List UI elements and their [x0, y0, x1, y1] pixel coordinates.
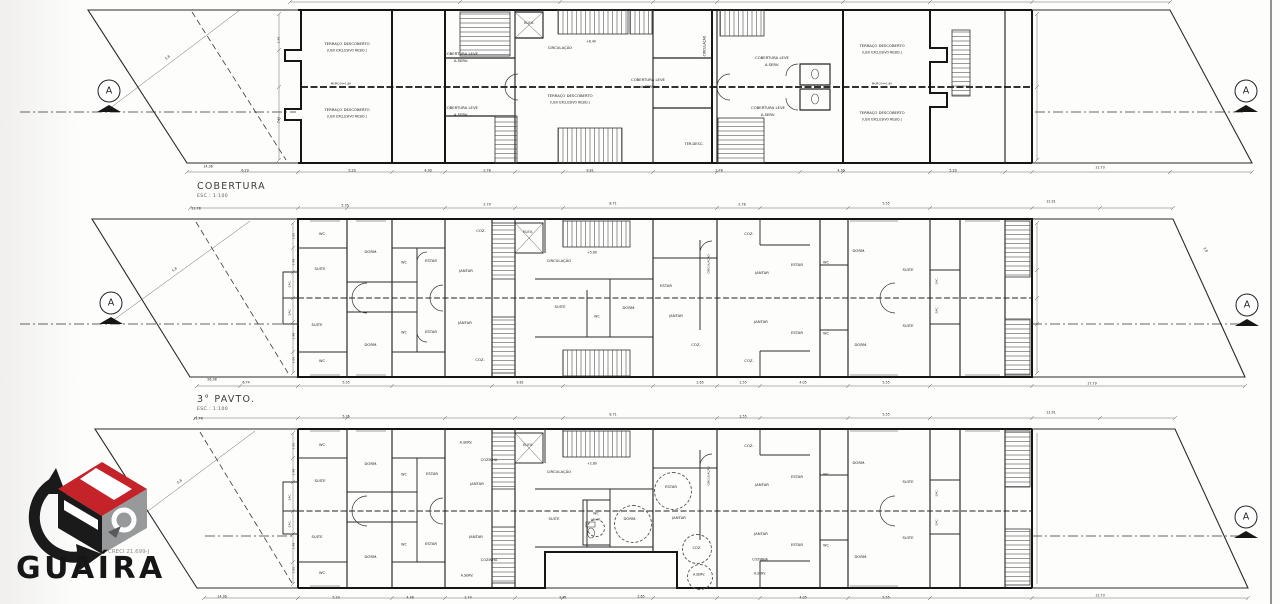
plan-annotation: JANTAR — [755, 271, 769, 275]
plan-annotation: ESTAR — [660, 284, 672, 288]
plan-annotation: WC — [823, 544, 829, 547]
plan-annotation: CIRCULAÇÃO — [547, 470, 572, 474]
plan-annotation: COBERTURA LEVE — [631, 78, 665, 82]
plan-annotation: 1.48 — [293, 543, 296, 550]
section-marker-arrow — [1234, 105, 1258, 112]
plan-annotation: SUITE — [902, 324, 913, 328]
plan-annotation: +5.60 — [587, 251, 597, 254]
plan-annotation: 6.29 — [241, 169, 248, 172]
plan-annotation: COZ. — [744, 359, 753, 363]
plan-annotation: 9.81 — [586, 169, 593, 172]
plan-annotation: TERRAÇO DESCOBERTO — [547, 94, 592, 98]
plan-annotation: COZ. — [744, 444, 753, 448]
plan-annotation: A.SERV. — [641, 85, 655, 89]
plan-annotation: TERRAÇO DESCOBERTO — [324, 108, 369, 112]
plan-annotation: JANTAR — [754, 532, 768, 536]
plan-annotation: 56.38 — [207, 378, 216, 381]
turning-radius-circle — [614, 505, 652, 543]
guaira-logo-graphic: CRECI 21.699-J GUAÍRA — [8, 438, 208, 598]
plan-annotation: WC — [823, 261, 829, 264]
plan-annotation: TER.DESC. — [685, 143, 704, 147]
plan-annotation: 1.48 — [278, 117, 281, 124]
plan-annotation: CIRCULAÇÃO — [708, 254, 711, 273]
plan-annotation: 5.35 — [342, 381, 349, 384]
plan-annotation: 11.73 — [1095, 166, 1104, 169]
plan-annotation: COBERTURA LEVE — [444, 52, 478, 56]
plan-annotation: (USO EXCLUSIVO RESID.) — [327, 115, 367, 118]
section-marker-arrow — [99, 317, 123, 324]
plan-annotation: JANTAR — [469, 535, 483, 539]
plan-annotation: JANTAR — [458, 321, 472, 325]
plan-annotation: 2.79 — [483, 203, 490, 206]
plan-annotation: MURO H=1.80 — [872, 83, 892, 86]
plan-annotation: A.SERV. — [765, 63, 779, 67]
plan-annotation: (USO EXCLUSIVO RESID.) — [327, 49, 367, 52]
plan-annotation: 5.8 — [165, 55, 171, 61]
plan-annotation: 8.71 — [609, 202, 616, 205]
plan-annotation: SUITE — [902, 536, 913, 540]
plan-annotation: A.SERV. — [454, 59, 468, 63]
plan-annotation: COZINHA — [481, 559, 498, 563]
plan-annotation: 5.55 — [882, 381, 889, 384]
logo-wordmark: GUAÍRA — [16, 550, 166, 586]
plan-annotation: (USO EXCLUSIVO RESID.) — [550, 101, 590, 104]
plan-annotation: 2.78 — [738, 203, 745, 206]
plan-annotation: A.SERV. — [454, 113, 468, 117]
plan-annotation: 5.20 — [332, 596, 339, 599]
plan-annotation: ESTAR — [791, 475, 803, 479]
plan-annotation: 1.05 — [293, 443, 296, 450]
plan-annotation: ESTAR — [791, 331, 803, 335]
plan-annotation: WC — [823, 473, 829, 476]
plan-annotation: DORM. — [364, 555, 377, 559]
plan-annotation: MURO H=1.80 — [331, 83, 351, 86]
plan-annotation: DORM. — [364, 250, 377, 254]
plan-annotation: TERRAÇO DESCOBERTO — [859, 111, 904, 115]
plan-annotation: TERRAÇO DESCOBERTO — [324, 42, 369, 46]
plan-annotation: WC — [401, 261, 407, 264]
plan-annotation: 12.91 — [1046, 200, 1055, 203]
plan-annotation: JANTAR — [672, 516, 686, 520]
plan-annotation: 2.55 — [739, 381, 746, 384]
turning-radius-circle — [682, 534, 712, 564]
plan-annotation: TERRAÇO DESCOBERTO — [859, 44, 904, 48]
plan-annotation: WC — [593, 512, 598, 515]
plan-annotation: SUITE — [311, 535, 322, 539]
plan-annotation: ESTAR — [425, 259, 437, 263]
plan-annotation: 4.30 — [837, 169, 844, 172]
plan-annotation: 2.65 — [696, 381, 703, 384]
section-marker-letter: A — [1244, 300, 1251, 311]
plan-annotation: 11.78 — [193, 417, 202, 420]
plan-annotation: SAC. — [936, 518, 939, 525]
plan-annotation: 2.55 — [739, 415, 746, 418]
plan-annotation: 5.20 — [949, 169, 956, 172]
plan-annotation: 1.48 — [293, 469, 296, 476]
section-marker-a-right-p2: A — [1236, 294, 1259, 317]
plan-annotation: COBERTURA LEVE — [751, 106, 785, 110]
plan-annotation: 11.73 — [1095, 594, 1104, 597]
plan-annotation: 3.8 — [1202, 247, 1207, 253]
plan-annotation: CIRCULAÇÃO — [548, 46, 573, 50]
section-marker-a-left-p1: A — [98, 80, 121, 103]
plan-title-text: 3° PAVTO. — [197, 394, 255, 405]
plan-annotation: COBERTURA LEVE — [444, 106, 478, 110]
section-marker-a-left-p2: A — [100, 292, 123, 315]
plan-annotation: 9.81 — [516, 381, 523, 384]
section-marker-arrow — [1234, 531, 1258, 538]
section-marker-letter: A — [1243, 512, 1250, 523]
plan-annotation: 6.74 — [242, 381, 249, 384]
plan-annotation: +8.40 — [586, 40, 596, 43]
plan-annotation: 2.78 — [715, 169, 722, 172]
plan-annotation: COZINHA — [752, 558, 768, 561]
plan-annotation: DORM. — [852, 461, 865, 465]
plan-annotation: COZINHA — [481, 459, 498, 463]
plan-annotation: +2.80 — [587, 462, 597, 465]
plan-annotation: ELEV. — [524, 22, 534, 26]
plan-annotation: 5.35 — [342, 415, 349, 418]
plan-annotation: 12.91 — [1046, 411, 1055, 414]
plan-annotation: CIRCULAÇÃO — [703, 36, 706, 57]
plan-annotation: 5.35 — [341, 204, 348, 207]
plan-annotation: A.SERV. — [461, 574, 474, 577]
plan-annotation: SUITE — [902, 480, 913, 484]
plan-annotation: 2.74 — [464, 596, 471, 599]
section-marker-arrow — [1235, 319, 1259, 326]
plan-annotation: (USO EXCLUSIVO RESID.) — [862, 51, 902, 54]
plan-annotation: SAC. — [289, 280, 292, 287]
turning-radius-circle — [654, 472, 692, 510]
plan-annotation: 8.71 — [609, 413, 616, 416]
plan-annotation: COZ. — [691, 343, 700, 347]
plan-annotation: 5.55 — [882, 413, 889, 416]
plan-annotation: CIRCULAÇÃO — [708, 466, 711, 485]
plan-title-cobertura: COBERTURA ESC.: 1:100 — [197, 181, 266, 199]
plan-annotation: ELEV. — [523, 231, 533, 235]
plan-annotation: WC — [319, 360, 325, 364]
plan-annotation: 17.79 — [1087, 382, 1096, 385]
plan-annotation: SAC. — [289, 520, 292, 527]
section-marker-arrow — [97, 105, 121, 112]
plan-annotation: SAC. — [936, 277, 939, 284]
plan-scale-note: ESC.: 1:100 — [197, 194, 266, 199]
plan-annotation: SAC. — [936, 306, 939, 313]
plan-annotation: JANTAR — [470, 482, 484, 486]
plan-annotation: JANTAR — [459, 269, 473, 273]
plan-annotation: WC — [319, 233, 325, 237]
plan-annotation: (USO EXCLUSIVO RESID.) — [862, 118, 902, 121]
plan-annotation: SUITE — [311, 323, 322, 327]
plan-annotation: SUITE — [548, 517, 559, 521]
plan-annotation: 1.48 — [293, 333, 296, 340]
plan-annotation: WC — [319, 572, 325, 576]
plan-annotation: COZ. — [744, 232, 753, 236]
plan-annotation: WC — [823, 332, 829, 335]
plan-annotation: 14.36 — [203, 165, 212, 168]
plan-annotation: 11.78 — [191, 207, 200, 210]
plan-annotation: ESTAR — [425, 542, 437, 546]
plan-annotation: 4.30 — [424, 169, 431, 172]
plan-annotation: WC — [401, 331, 407, 334]
plan-annotation: COBERTURA LEVE — [755, 56, 789, 60]
plan-title-text: COBERTURA — [197, 181, 266, 192]
guaira-logo: CRECI 21.699-J GUAÍRA — [8, 438, 208, 602]
section-marker-letter: A — [108, 298, 115, 309]
plan-annotation: 9.81 — [559, 596, 566, 599]
plan-annotation: 2.78 — [483, 169, 490, 172]
turning-radius-circle — [687, 564, 713, 590]
turning-radius-circle — [587, 519, 605, 537]
plan-annotation: 5.55 — [882, 202, 889, 205]
plan-annotation: COZ. — [476, 229, 485, 233]
plan-annotation: DORM. — [854, 555, 867, 559]
plan-annotation: 5.20 — [348, 169, 355, 172]
plan-annotation: CIRCULAÇÃO — [547, 259, 572, 263]
section-marker-letter: A — [106, 86, 113, 97]
plan-annotation: SAC. — [289, 493, 292, 500]
plan-annotation: ESTAR — [426, 472, 438, 476]
section-marker-a-right-p1: A — [1235, 80, 1258, 103]
plan-annotation: A.SERV. — [460, 441, 473, 444]
plan-annotation: A.SERV. — [761, 113, 775, 117]
plan-annotation: 1.48 — [293, 259, 296, 266]
plan-annotation: ESTAR — [791, 543, 803, 547]
plan-annotation: SUITE — [314, 267, 325, 271]
plan-annotation: WC — [401, 473, 407, 476]
plan-annotation: DORM. — [622, 306, 635, 310]
plan-annotation: JANTAR — [754, 320, 768, 324]
plan-annotation: 1.05 — [293, 567, 296, 574]
plan-annotation: A.SERV. — [754, 572, 766, 575]
plan-annotation: SUITE — [554, 305, 565, 309]
plan-annotation: WC — [319, 444, 325, 448]
plan-annotation: DORM. — [852, 249, 865, 253]
plan-annotation: 2.40 — [278, 37, 281, 44]
plan-annotation: JANTAR — [755, 483, 769, 487]
plan-annotation: ESTAR — [425, 330, 437, 334]
plan-annotation: ESTAR — [791, 263, 803, 267]
plan-annotation: WC — [401, 543, 407, 546]
plan-annotation: SUITE — [314, 479, 325, 483]
plan-annotation: 4.05 — [799, 381, 806, 384]
plan-annotation: DORM. — [364, 462, 377, 466]
plan-annotation: DORM. — [854, 343, 867, 347]
section-marker-a-right-p3: A — [1235, 506, 1258, 529]
plan-annotation: SAC. — [936, 489, 939, 496]
plan-annotation: JANTAR — [669, 314, 683, 318]
section-marker-letter: A — [1243, 86, 1250, 97]
plan-annotation: 4.38 — [406, 596, 413, 599]
plan-annotation: 5.8 — [172, 267, 178, 273]
plan-annotation: 1.05 — [293, 233, 296, 240]
plan-annotation: 5.55 — [882, 596, 889, 599]
plan-annotation: 1.05 — [293, 357, 296, 364]
plan-annotation: 14.36 — [217, 595, 226, 598]
plan-annotation: SUITE — [902, 268, 913, 272]
plan-scale-note: ESC.: 1:100 — [197, 407, 255, 412]
plan-annotation: COZ. — [475, 358, 484, 362]
plan-annotation: 4.05 — [799, 596, 806, 599]
plan-annotation: SAC. — [289, 308, 292, 315]
plan-annotation: ELEV. — [523, 444, 533, 448]
blueprint-sheet: TERRAÇO DESCOBERTO(USO EXCLUSIVO RESID.)… — [0, 0, 1280, 604]
plan-annotation: DORM. — [364, 343, 377, 347]
plan-annotation: 2.65 — [637, 595, 644, 598]
plan-title-3-pavto: 3° PAVTO. ESC.: 1:100 — [197, 394, 255, 412]
plan-annotation: WC — [594, 315, 599, 318]
